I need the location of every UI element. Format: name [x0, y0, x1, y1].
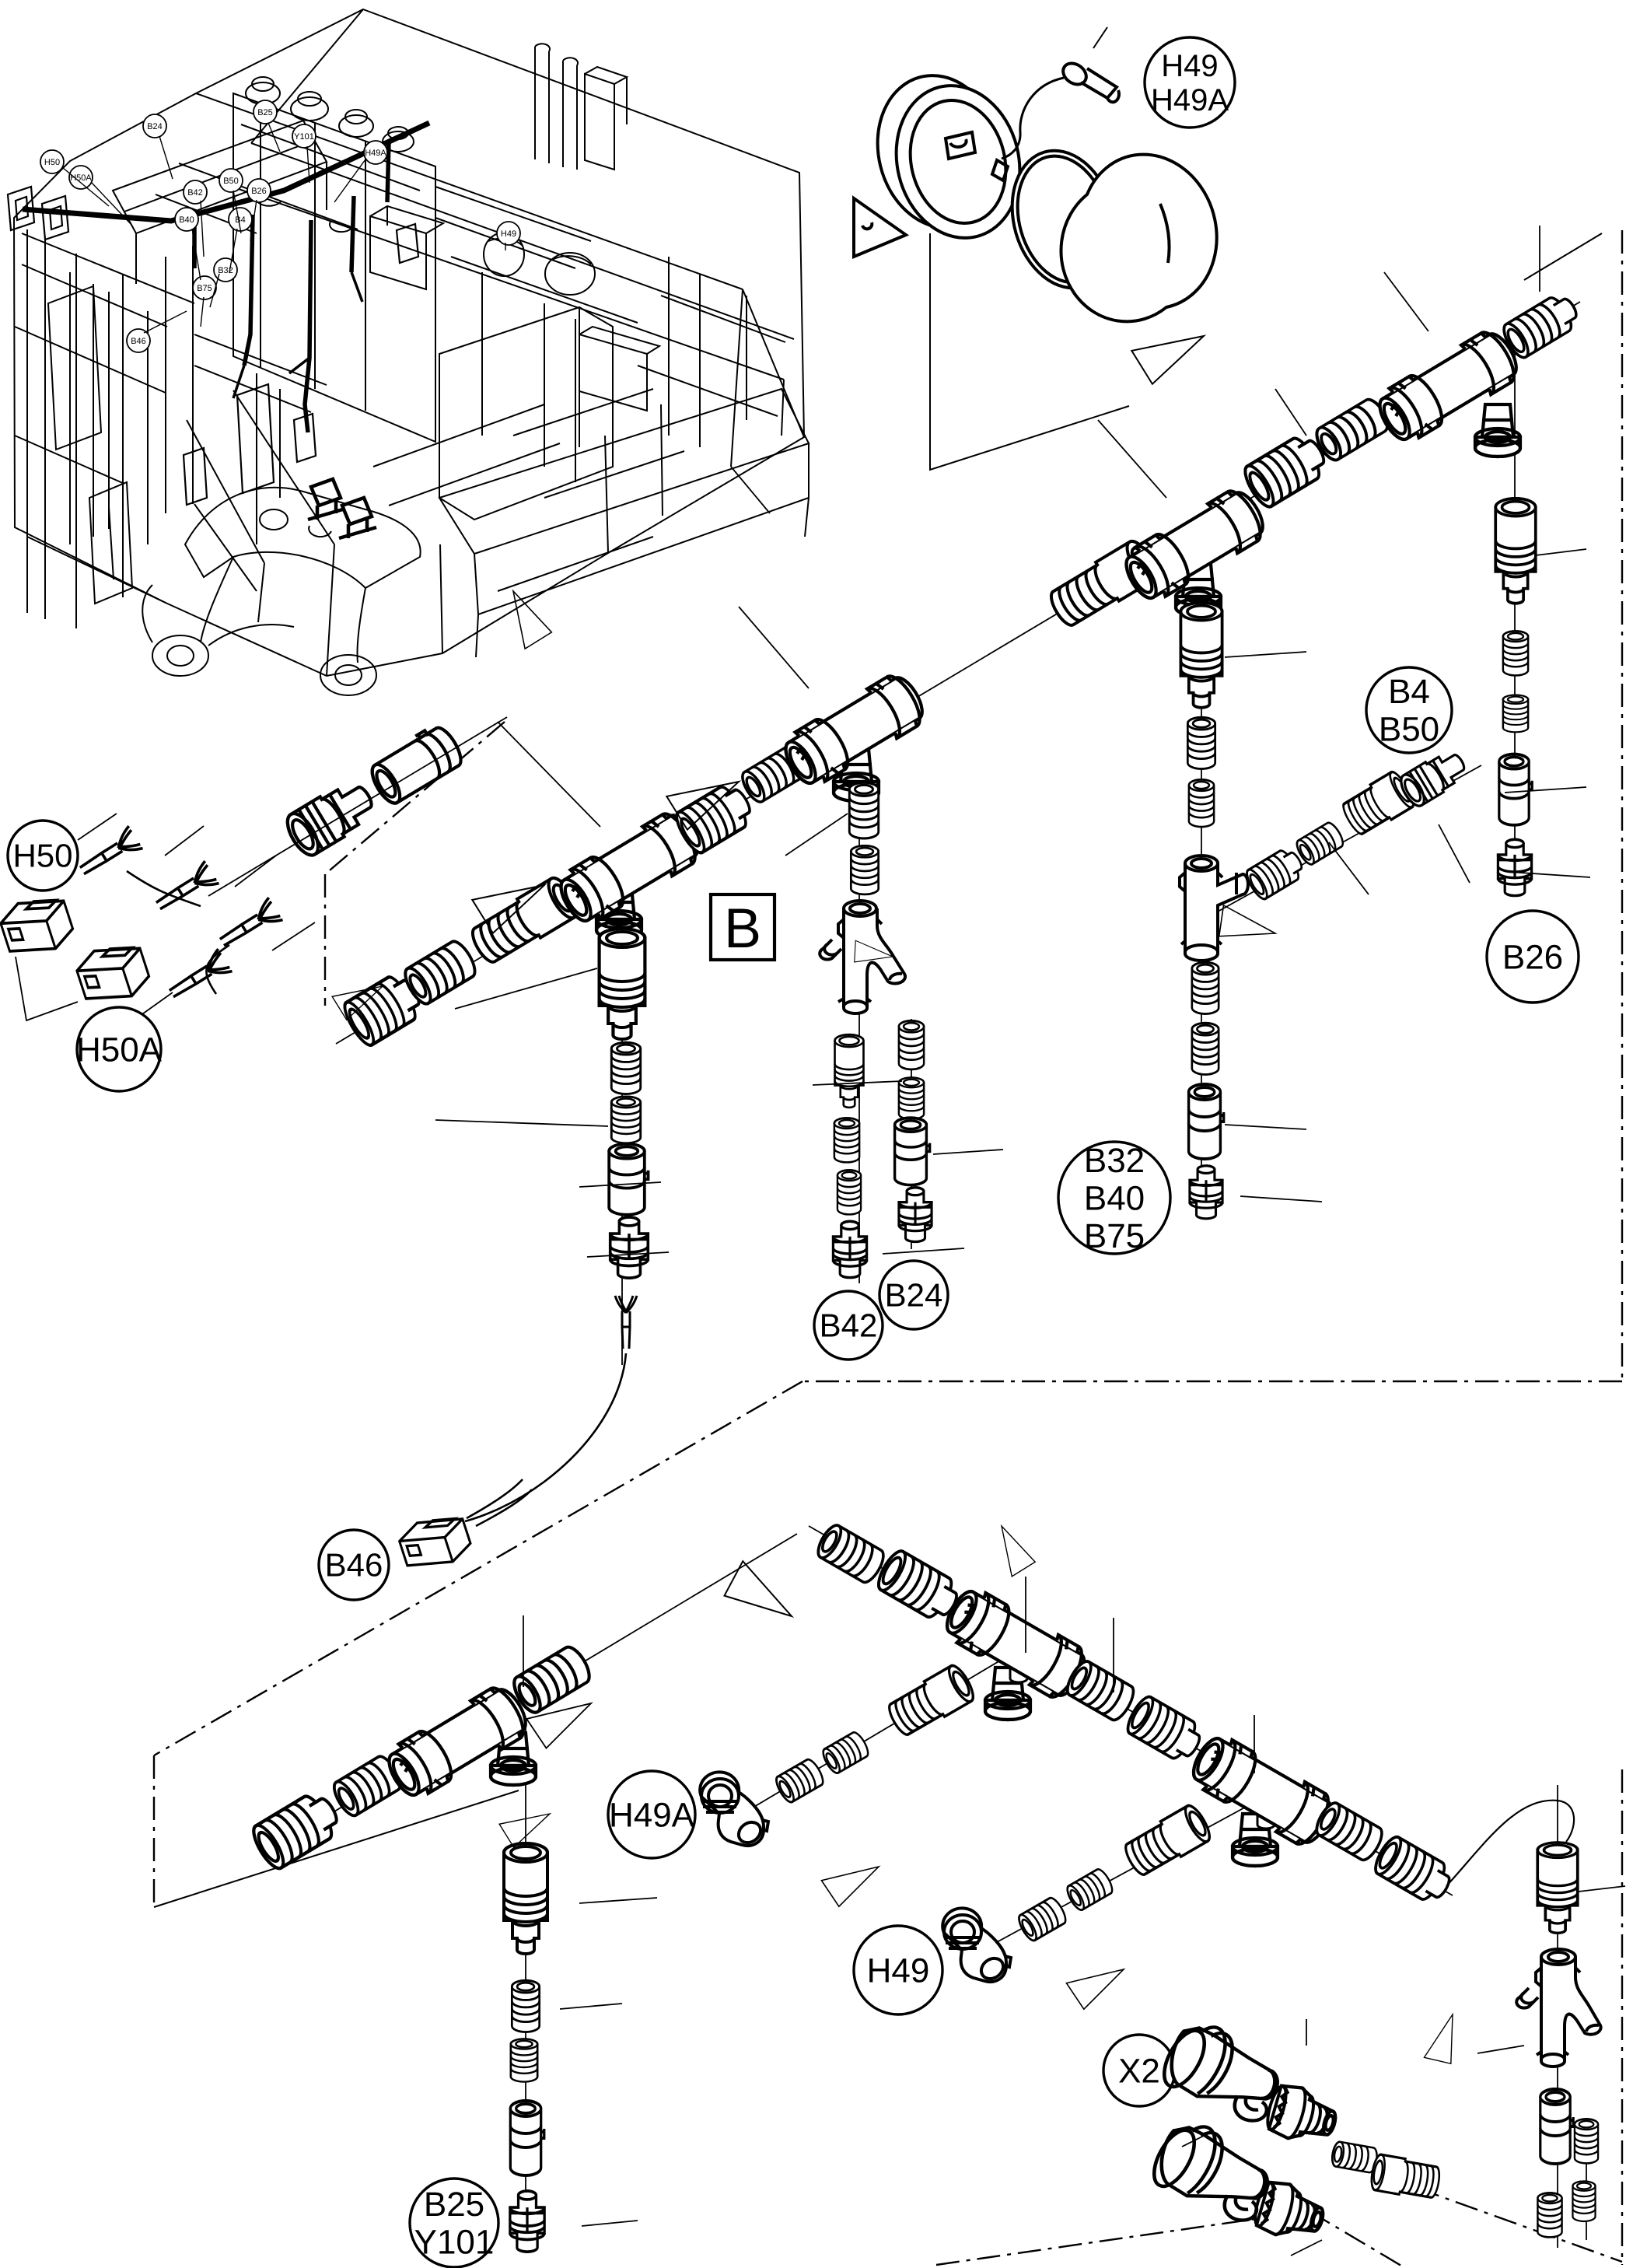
svg-text:B25Y101: B25Y101 [414, 2186, 495, 2261]
svg-text:B25: B25 [257, 108, 273, 117]
svg-text:X2: X2 [1118, 2052, 1160, 2090]
svg-text:B: B [724, 898, 761, 960]
svg-text:Y101: Y101 [294, 132, 314, 142]
svg-text:B46: B46 [325, 1547, 383, 1584]
svg-text:H49: H49 [867, 1951, 930, 1990]
svg-text:B32: B32 [218, 266, 233, 275]
svg-text:B42: B42 [820, 1307, 878, 1344]
svg-text:H50A: H50A [76, 1031, 163, 1069]
svg-text:H50A: H50A [70, 173, 92, 183]
svg-text:B42: B42 [187, 188, 203, 198]
svg-text:B26: B26 [1502, 938, 1563, 976]
svg-text:B50: B50 [223, 177, 239, 186]
svg-text:H49: H49 [501, 229, 516, 239]
svg-text:B26: B26 [251, 187, 267, 196]
svg-text:H49H49A: H49H49A [1151, 49, 1229, 117]
svg-text:H50: H50 [12, 838, 72, 874]
svg-text:B24: B24 [885, 1277, 943, 1314]
svg-text:H50: H50 [44, 158, 60, 167]
svg-text:B75: B75 [197, 284, 212, 293]
svg-text:B46: B46 [131, 337, 146, 346]
svg-text:B4: B4 [235, 215, 245, 225]
svg-text:B40: B40 [179, 215, 194, 225]
svg-text:B32B40B75: B32B40B75 [1084, 1142, 1145, 1255]
svg-text:B24: B24 [147, 122, 163, 131]
svg-text:H49A: H49A [609, 1796, 695, 1834]
svg-text:H49A: H49A [365, 149, 386, 158]
